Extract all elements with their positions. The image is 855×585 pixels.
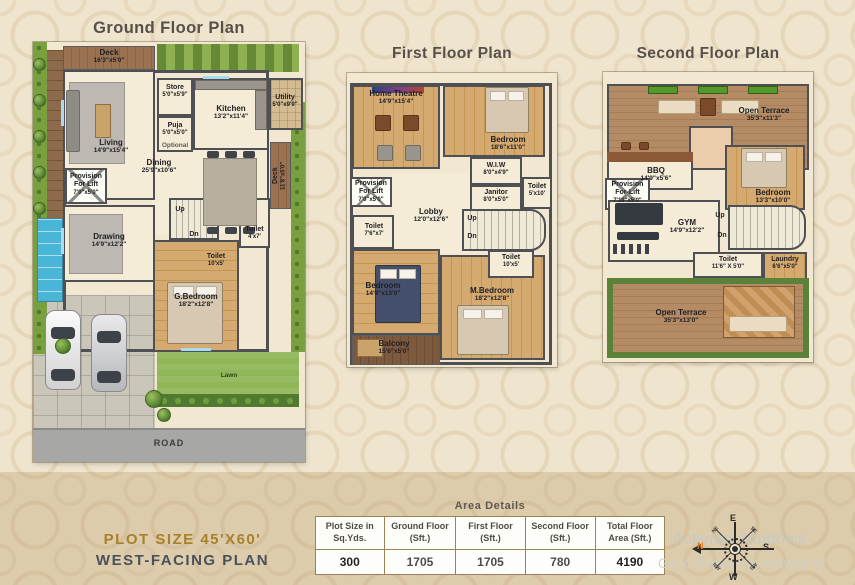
dining-chair [243, 227, 255, 234]
room-toilet-right [522, 177, 552, 209]
room-toilet-left [352, 215, 394, 249]
kitchen-counter-side [255, 90, 267, 130]
tree [33, 202, 46, 215]
table-value-row: 300 1705 1705 780 4190 [316, 550, 665, 575]
room-lobby [392, 173, 470, 253]
dining-table [203, 158, 257, 226]
label-lawn: Lawn [209, 372, 249, 379]
room-home-theatre [352, 85, 440, 169]
col-header-total: Total Floor Area (Sft.) [595, 517, 664, 550]
room-utility [269, 78, 303, 130]
room-toilet-mid [488, 250, 534, 278]
room-laundry [763, 252, 807, 280]
label-optional: Optional [151, 142, 199, 149]
second-floor-plan: Open Terrace35'3"x11'3" BBQ14'9"x5'6" Pr… [603, 72, 813, 362]
living-sofa [66, 90, 80, 152]
planter [748, 86, 778, 94]
terrace-table [700, 98, 716, 116]
room-janitor [470, 185, 522, 211]
plot-info: PLOT SIZE 45'X60' WEST-FACING PLAN [85, 531, 280, 569]
theatre-seat [375, 115, 391, 131]
theatre-seat [377, 145, 393, 161]
tree [33, 94, 46, 107]
drawing-rug [69, 214, 123, 274]
lift-shaft [350, 177, 392, 207]
dining-chair [207, 151, 219, 158]
compass-center-dot [732, 546, 738, 552]
value-plot-size: 300 [316, 550, 385, 575]
window [203, 76, 229, 79]
planter [648, 86, 678, 94]
lift-shaft [65, 168, 107, 204]
hedge-row [157, 394, 299, 407]
compass-label-n: N [697, 541, 704, 551]
bbq-counter [607, 152, 693, 162]
planter [698, 86, 728, 94]
room-toilet [693, 252, 763, 278]
room-wiw [470, 157, 522, 185]
col-header-first: First Floor (Sft.) [456, 517, 525, 550]
deck-right [270, 142, 291, 209]
bbq-stool [639, 142, 649, 150]
floor-plan-brochure: Ground Floor Plan First Floor Plan Secon… [0, 0, 855, 585]
treadmill [615, 203, 663, 225]
window [181, 348, 211, 351]
dining-chair [225, 151, 237, 158]
ground-floor-title: Ground Floor Plan [33, 19, 305, 38]
pergola-sofa [729, 316, 787, 332]
tree [33, 58, 46, 71]
dining-chair [225, 227, 237, 234]
car-rear-glass [51, 369, 75, 381]
car-windshield [97, 331, 121, 343]
swimming-pool [37, 218, 63, 302]
palm-tree [157, 408, 171, 422]
right-garden-strip [291, 102, 305, 352]
ground-floor-plan: Deck16'3"x5'0" Living14'9"x15'4" Store5'… [33, 42, 305, 462]
table-header-row: Plot Size in Sq.Yds. Ground Floor (Sft.)… [316, 517, 665, 550]
gym-bench [617, 232, 659, 240]
facing-text: WEST-FACING PLAN [85, 552, 280, 569]
col-header-second: Second Floor (Sft.) [525, 517, 595, 550]
top-garden-strip [157, 44, 299, 72]
home-theatre-screen [372, 87, 424, 93]
dumbbell-rack [613, 244, 651, 254]
car-rear-glass [97, 371, 121, 383]
value-ground: 1705 [384, 550, 456, 575]
palm-tree [145, 390, 163, 408]
label-dn: Dn [713, 232, 731, 239]
second-floor-title: Second Floor Plan [603, 45, 813, 63]
tree [33, 130, 46, 143]
bedroom1-bed [485, 87, 529, 133]
tree [55, 338, 71, 354]
terrace-sofa [721, 100, 759, 114]
label-dn: Dn [463, 233, 481, 240]
g-bedroom-bed [167, 282, 223, 344]
theatre-seat [403, 115, 419, 131]
kitchen-counter [195, 80, 267, 90]
dining-chair [243, 151, 255, 158]
balcony-lounge [357, 339, 383, 357]
bedroom3-bed [741, 148, 787, 188]
label-up: Up [711, 212, 729, 219]
col-header-ground: Ground Floor (Sft.) [384, 517, 456, 550]
staircase [728, 205, 806, 250]
value-first: 1705 [456, 550, 525, 575]
label-dn: Dn [185, 231, 203, 238]
plot-size-text: PLOT SIZE 45'X60' [85, 531, 280, 548]
compass-rose: E S W N NE SE SW NW [696, 516, 774, 582]
left-garden-strip [33, 42, 47, 354]
car [91, 314, 127, 392]
label-up: Up [463, 215, 481, 222]
window [61, 228, 64, 254]
area-details: Area Details Plot Size in Sq.Yds. Ground… [315, 500, 665, 575]
value-second: 780 [525, 550, 595, 575]
tree [33, 166, 46, 179]
compass-label-w: W [729, 572, 738, 582]
first-floor-plan: Home Theatre14'9"x15'4" Bedroom18'6"x11'… [347, 73, 557, 367]
col-header-plot-size: Plot Size in Sq.Yds. [316, 517, 385, 550]
first-floor-title: First Floor Plan [347, 45, 557, 63]
dining-chair [207, 227, 219, 234]
area-details-title: Area Details [315, 500, 665, 512]
living-table [95, 104, 111, 138]
theatre-seat [405, 145, 421, 161]
window [61, 100, 64, 126]
value-total: 4190 [595, 550, 664, 575]
m-bedroom-bed [457, 305, 509, 355]
room-store [157, 78, 193, 116]
label-up: Up [171, 206, 189, 213]
terrace-sofa [658, 100, 696, 114]
compass-label-s: S [763, 542, 769, 552]
bbq-stool [621, 142, 631, 150]
deck-top [63, 46, 155, 70]
label-road: ROAD [139, 438, 199, 448]
compass-label-e: E [730, 513, 736, 523]
area-details-table: Plot Size in Sq.Yds. Ground Floor (Sft.)… [315, 516, 665, 575]
bedroom2-bed [375, 265, 421, 323]
